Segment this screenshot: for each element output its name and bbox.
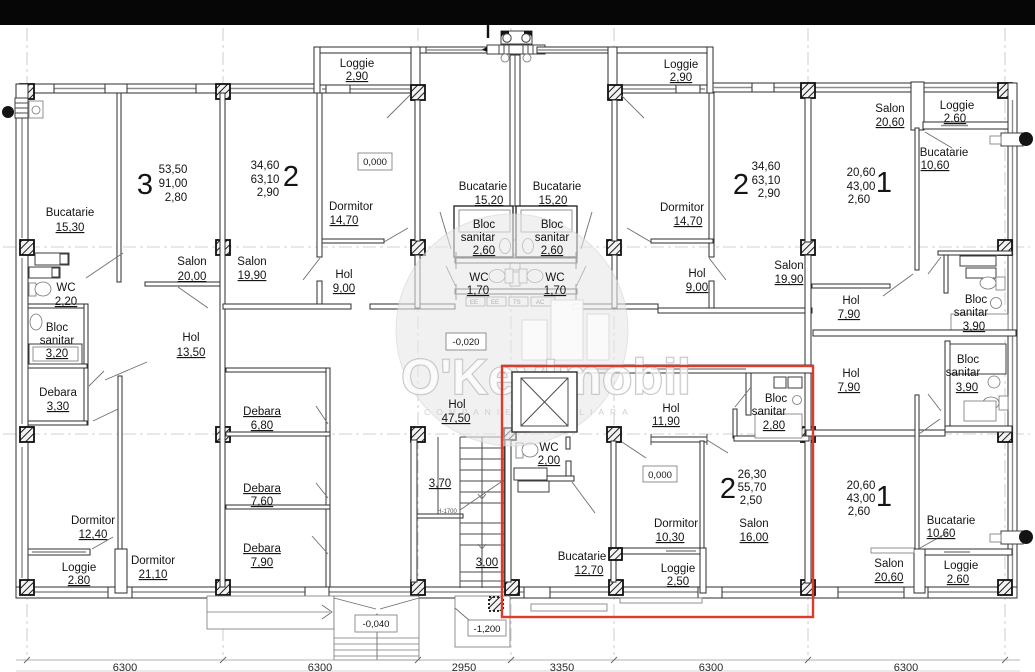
svg-text:sanitar: sanitar (954, 307, 989, 319)
svg-text:Debara: Debara (243, 483, 281, 495)
svg-text:Bucatarie: Bucatarie (459, 181, 508, 193)
svg-text:2,20: 2,20 (55, 296, 77, 308)
svg-text:11,90: 11,90 (652, 416, 680, 428)
svg-text:WC: WC (539, 442, 558, 454)
svg-text:55,70: 55,70 (738, 482, 767, 494)
svg-text:13,50: 13,50 (177, 347, 206, 359)
svg-text:Debara: Debara (39, 387, 77, 399)
svg-text:2,80: 2,80 (165, 192, 187, 204)
svg-text:1,70: 1,70 (544, 285, 566, 297)
svg-text:3: 3 (137, 169, 153, 201)
svg-text:Bucatarie: Bucatarie (46, 207, 95, 219)
svg-text:2,50: 2,50 (667, 576, 689, 588)
svg-text:3,00: 3,00 (476, 557, 498, 569)
svg-text:H-1700: H-1700 (437, 509, 457, 515)
svg-text:WC: WC (469, 272, 488, 284)
svg-text:63,10: 63,10 (251, 174, 280, 186)
svg-text:0,000: 0,000 (363, 157, 387, 168)
svg-text:Hol: Hol (662, 403, 679, 415)
svg-text:91,00: 91,00 (159, 178, 188, 190)
svg-text:Loggie: Loggie (62, 562, 97, 574)
svg-text:Bucatarie: Bucatarie (558, 551, 607, 563)
svg-text:Salon: Salon (177, 256, 206, 268)
svg-text:Dormitor: Dormitor (660, 202, 704, 214)
svg-text:3,70: 3,70 (429, 478, 451, 490)
svg-text:10,60: 10,60 (921, 160, 950, 172)
svg-text:sanitar: sanitar (946, 367, 981, 379)
svg-text:7,90: 7,90 (838, 309, 860, 321)
svg-text:Loggie: Loggie (940, 100, 975, 112)
svg-text:1,70: 1,70 (467, 285, 489, 297)
svg-text:-0,020: -0,020 (453, 337, 480, 348)
svg-text:20,60: 20,60 (847, 480, 876, 492)
svg-text:2,60: 2,60 (541, 245, 563, 257)
svg-text:6,80: 6,80 (251, 420, 273, 432)
svg-text:7,60: 7,60 (251, 496, 273, 508)
svg-text:2.80: 2.80 (68, 575, 90, 587)
svg-text:sanitar: sanitar (752, 406, 787, 418)
svg-text:Hol: Hol (688, 268, 705, 280)
svg-text:Debara: Debara (243, 543, 281, 555)
svg-text:WC: WC (56, 282, 75, 294)
svg-text:Hol: Hol (182, 332, 199, 344)
svg-text:Hol: Hol (842, 368, 859, 380)
svg-text:2,90: 2,90 (257, 187, 279, 199)
svg-text:3,30: 3,30 (47, 401, 69, 413)
svg-text:20,60: 20,60 (875, 572, 904, 584)
svg-text:16,00: 16,00 (740, 532, 769, 544)
svg-text:Loggie: Loggie (661, 563, 696, 575)
svg-text:sanitar: sanitar (461, 232, 496, 244)
svg-text:Salon: Salon (774, 260, 803, 272)
svg-text:43,00: 43,00 (847, 493, 876, 505)
svg-text:Loggie: Loggie (664, 59, 699, 71)
svg-text:Bloc: Bloc (473, 219, 496, 231)
svg-text:20,60: 20,60 (876, 117, 905, 129)
svg-text:Bucatarie: Bucatarie (533, 181, 582, 193)
svg-text:2.60: 2.60 (944, 113, 966, 125)
svg-text:7,90: 7,90 (838, 382, 860, 394)
svg-text:Hol: Hol (335, 269, 352, 281)
svg-text:2,50: 2,50 (740, 495, 762, 507)
svg-text:53,50: 53,50 (159, 164, 188, 176)
svg-text:34,60: 34,60 (752, 161, 781, 173)
svg-text:6300: 6300 (894, 662, 918, 672)
svg-text:sanitar: sanitar (535, 232, 570, 244)
svg-text:Salon: Salon (874, 558, 903, 570)
svg-text:Bloc: Bloc (541, 219, 564, 231)
svg-text:43,00: 43,00 (847, 181, 876, 193)
svg-text:7,90: 7,90 (251, 557, 273, 569)
svg-text:Bloc: Bloc (765, 393, 788, 405)
svg-text:20,60: 20,60 (847, 167, 876, 179)
svg-text:6300: 6300 (308, 662, 332, 672)
svg-text:9,00: 9,00 (686, 282, 708, 294)
svg-text:6300: 6300 (699, 662, 723, 672)
svg-text:Salon: Salon (739, 518, 768, 530)
svg-text:21,10: 21,10 (139, 569, 168, 581)
svg-text:15,20: 15,20 (539, 195, 568, 207)
svg-text:2.60: 2.60 (947, 574, 969, 586)
svg-text:2,60: 2,60 (848, 194, 870, 206)
svg-text:Dormitor: Dormitor (71, 515, 115, 527)
svg-text:WC: WC (545, 272, 564, 284)
svg-text:9,00: 9,00 (333, 283, 355, 295)
svg-text:2: 2 (283, 161, 299, 193)
svg-text:19,90: 19,90 (775, 274, 804, 286)
svg-text:-0,040: -0,040 (363, 619, 390, 630)
svg-text:Bloc: Bloc (965, 294, 988, 306)
svg-text:2,90: 2,90 (670, 72, 692, 84)
svg-text:2,90: 2,90 (758, 188, 780, 200)
svg-text:1: 1 (876, 167, 892, 199)
svg-text:20,00: 20,00 (178, 271, 207, 283)
svg-text:-1,200: -1,200 (474, 624, 501, 635)
svg-text:2: 2 (733, 169, 749, 201)
svg-text:14,70: 14,70 (330, 215, 359, 227)
svg-text:Dormitor: Dormitor (654, 518, 698, 530)
svg-text:2,00: 2,00 (538, 455, 560, 467)
svg-text:19,90: 19,90 (238, 270, 267, 282)
svg-text:2,60: 2,60 (848, 506, 870, 518)
svg-text:15,20: 15,20 (475, 195, 504, 207)
svg-text:63,10: 63,10 (752, 175, 781, 187)
svg-text:10,30: 10,30 (656, 532, 685, 544)
svg-text:Debara: Debara (243, 406, 281, 418)
svg-text:2: 2 (720, 473, 736, 505)
svg-text:3,90: 3,90 (963, 321, 985, 333)
svg-text:47,50: 47,50 (442, 413, 471, 425)
svg-text:12,40: 12,40 (79, 529, 108, 541)
svg-text:Hol: Hol (448, 399, 465, 411)
svg-text:Bloc: Bloc (46, 322, 69, 334)
svg-text:14,70: 14,70 (674, 216, 703, 228)
svg-text:3,90: 3,90 (956, 382, 978, 394)
svg-text:2,80: 2,80 (763, 420, 785, 432)
svg-text:Loggie: Loggie (340, 58, 375, 70)
svg-text:sanitar: sanitar (40, 335, 75, 347)
svg-text:12,70: 12,70 (575, 565, 604, 577)
svg-text:Bucatarie: Bucatarie (920, 147, 969, 159)
svg-text:3,20: 3,20 (46, 348, 68, 360)
svg-text:2,60: 2,60 (473, 245, 495, 257)
svg-text:Dormitor: Dormitor (329, 201, 373, 213)
svg-text:Hol: Hol (842, 295, 859, 307)
svg-text:15,30: 15,30 (56, 222, 85, 234)
svg-text:6300: 6300 (113, 662, 137, 672)
svg-text:Bloc: Bloc (957, 354, 980, 366)
svg-text:Salon: Salon (875, 103, 904, 115)
svg-text:2950: 2950 (452, 662, 476, 672)
svg-text:2,90: 2,90 (346, 71, 368, 83)
svg-text:Bucatarie: Bucatarie (927, 515, 976, 527)
svg-text:3350: 3350 (550, 662, 574, 672)
svg-text:1: 1 (876, 481, 892, 513)
svg-text:10,60: 10,60 (927, 528, 956, 540)
svg-text:34,60: 34,60 (251, 160, 280, 172)
svg-text:0,000: 0,000 (648, 470, 672, 481)
svg-text:26,30: 26,30 (738, 469, 767, 481)
svg-text:Dormitor: Dormitor (131, 555, 175, 567)
svg-text:Loggie: Loggie (944, 560, 979, 572)
svg-text:Salon: Salon (237, 256, 266, 268)
